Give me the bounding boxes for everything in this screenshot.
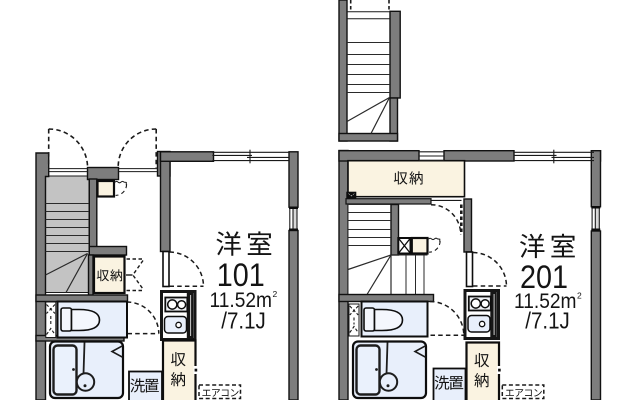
svg-text:/7.1J: /7.1J	[221, 308, 266, 334]
svg-text:101: 101	[217, 257, 265, 293]
svg-text:/7.1J: /7.1J	[525, 308, 570, 334]
svg-text:2: 2	[273, 289, 278, 299]
svg-text:2: 2	[577, 290, 582, 300]
